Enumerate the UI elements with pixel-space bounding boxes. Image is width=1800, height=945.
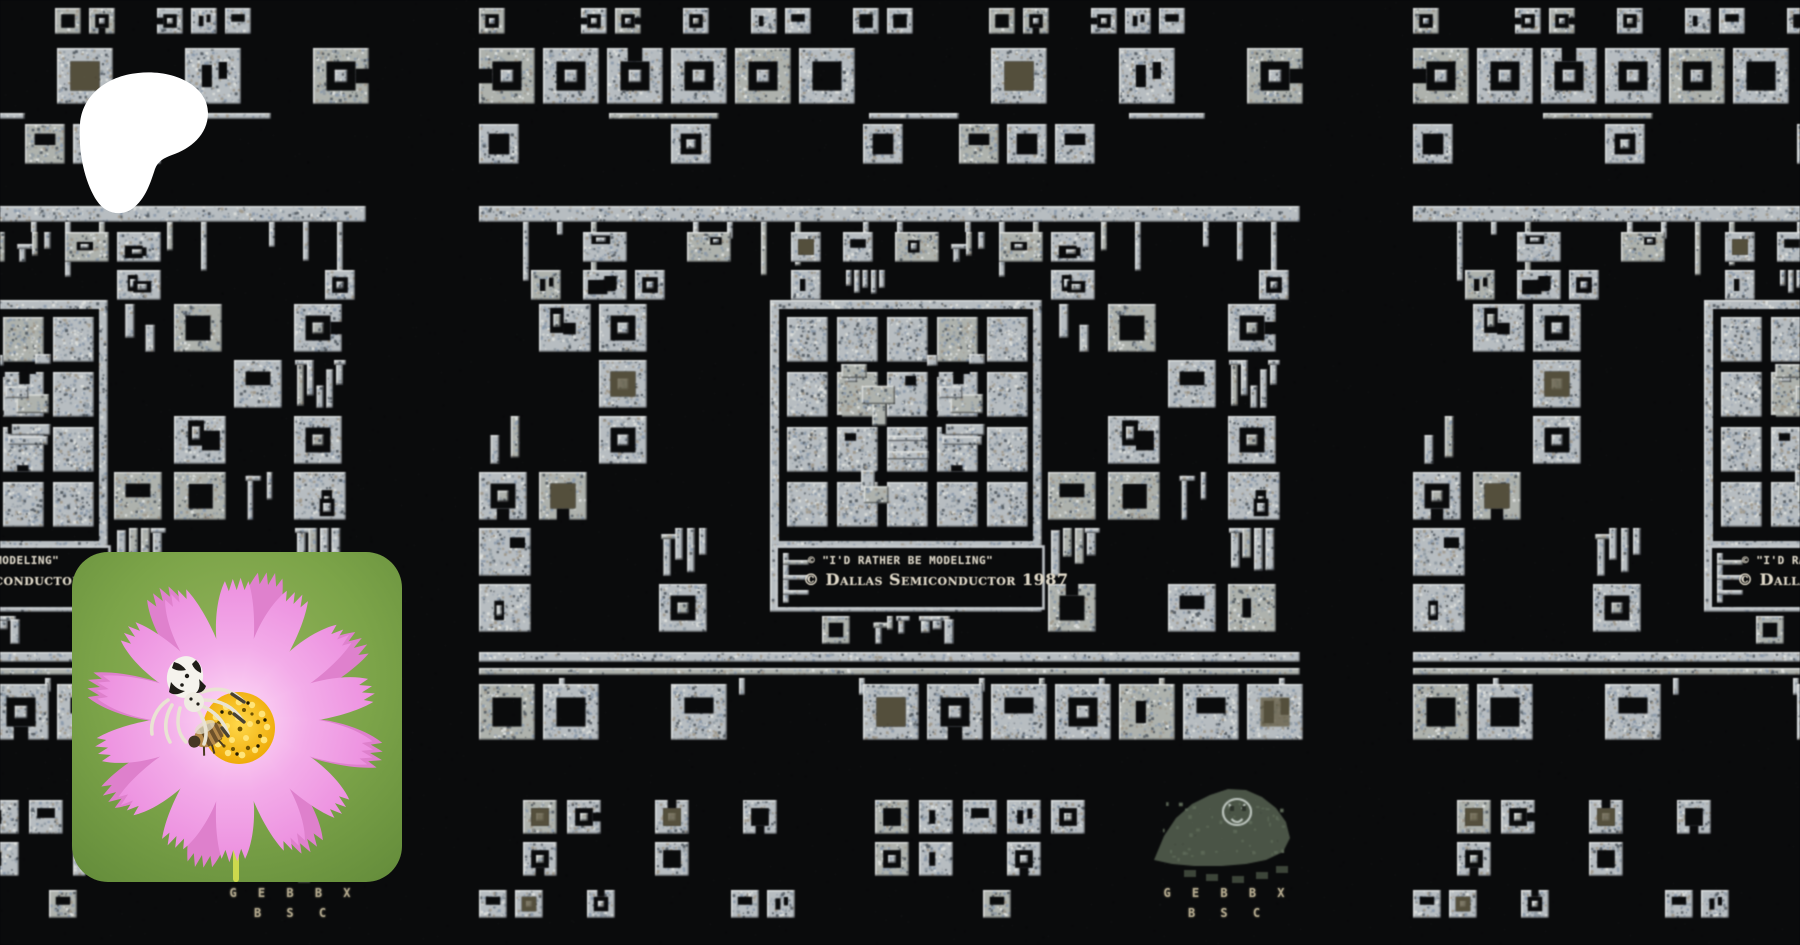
patreon-logo[interactable]: [78, 72, 210, 218]
creator-avatar[interactable]: [72, 552, 402, 882]
avatar-flower-image: [72, 552, 402, 882]
patreon-blob-icon: [78, 72, 210, 218]
patreon-cover-page: © "I'd rather be modeling" © Dallas Semi…: [0, 0, 1800, 945]
